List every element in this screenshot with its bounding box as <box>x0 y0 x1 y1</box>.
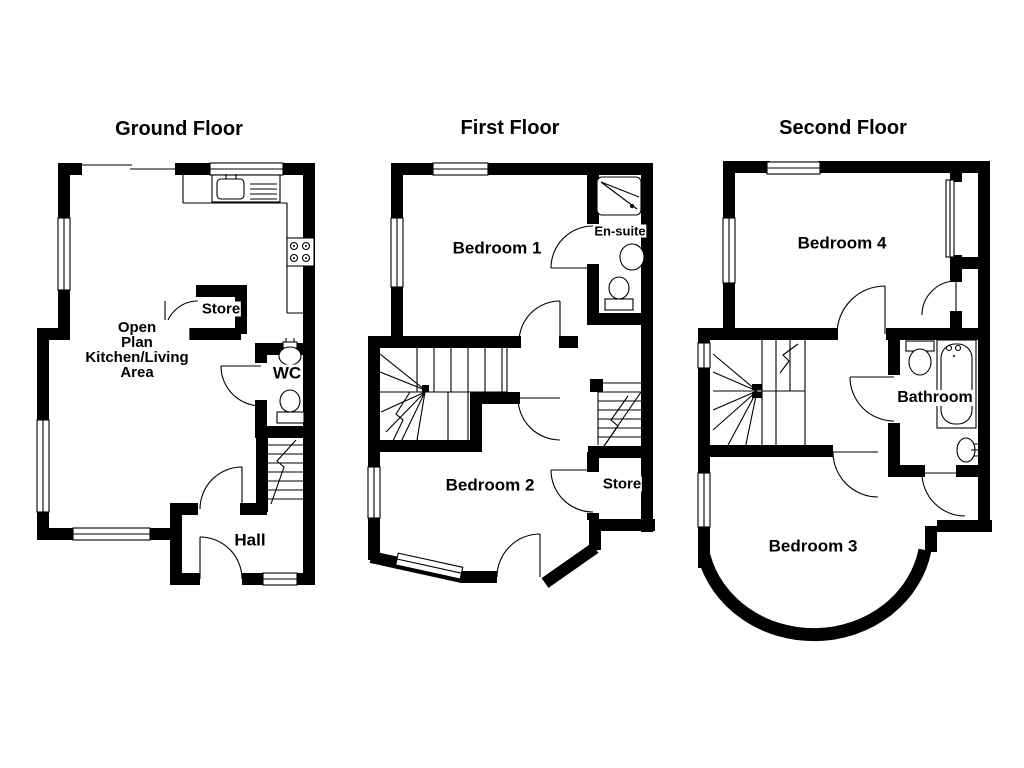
room-label-first-store: Store <box>602 477 642 492</box>
room-label-bedroom-4: Bedroom 4 <box>797 235 888 252</box>
room-label-bedroom-2: Bedroom 2 <box>445 477 536 494</box>
first-staircase-up-icon <box>590 379 643 449</box>
floorplan-page: Ground Floor Open Plan Kitchen/Living Ar… <box>0 0 1024 768</box>
wc-basin-icon <box>279 338 301 365</box>
floorplan-drawing <box>0 0 1024 768</box>
room-label-bathroom: Bathroom <box>896 390 974 406</box>
room-label-bedroom-1: Bedroom 1 <box>452 240 543 257</box>
room-label-en-suite: En-suite <box>593 225 646 238</box>
room-label-hall: Hall <box>233 532 266 549</box>
bow-wall <box>704 550 925 635</box>
kitchen-sink-icon <box>212 174 280 202</box>
room-label-bedroom-3: Bedroom 3 <box>768 538 859 555</box>
first-floor-title: First Floor <box>460 118 561 138</box>
second-floor-title: Second Floor <box>778 118 908 138</box>
wc-toilet-icon <box>277 390 304 423</box>
ensuite-toilet-icon <box>605 277 633 310</box>
hob-icon <box>287 238 314 266</box>
bathroom-toilet-icon <box>906 341 934 375</box>
ground-staircase-icon <box>267 440 303 504</box>
bathroom-basin-icon <box>957 438 980 462</box>
room-label-open-plan: Open Plan Kitchen/Living Area <box>84 320 189 380</box>
room-label-wc: WC <box>272 365 302 382</box>
ground-floor-title: Ground Floor <box>114 119 244 139</box>
room-label-ground-store: Store <box>201 302 241 317</box>
first-windows <box>368 163 488 579</box>
shower-icon <box>597 177 641 215</box>
second-staircase-icon <box>713 340 805 449</box>
bath-icon <box>937 340 976 428</box>
